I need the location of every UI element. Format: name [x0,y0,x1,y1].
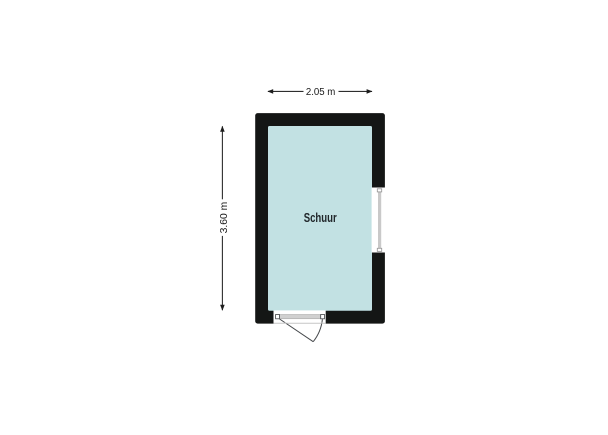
svg-text:Schuur: Schuur [304,211,337,225]
svg-text:2.05 m: 2.05 m [306,87,336,98]
svg-text:3.60 m: 3.60 m [219,202,230,234]
